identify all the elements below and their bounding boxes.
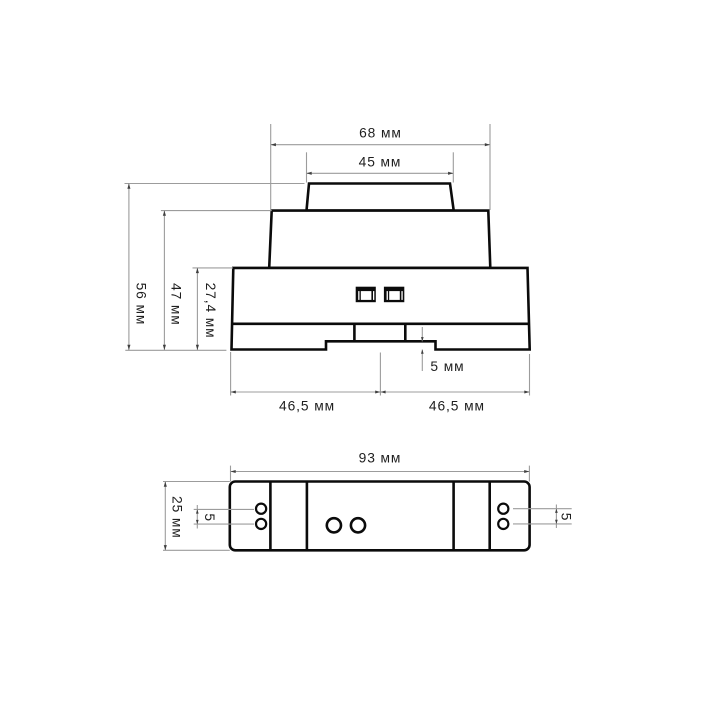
svg-text:47 мм: 47 мм: [169, 283, 184, 326]
svg-text:68 мм: 68 мм: [359, 125, 402, 140]
svg-text:46,5 мм: 46,5 мм: [279, 399, 335, 414]
svg-text:56 мм: 56 мм: [133, 283, 148, 326]
svg-text:25 мм: 25 мм: [170, 496, 185, 539]
svg-text:45 мм: 45 мм: [359, 154, 402, 169]
svg-text:27,4 мм: 27,4 мм: [203, 283, 218, 339]
svg-text:5: 5: [202, 513, 217, 522]
svg-text:5: 5: [559, 513, 574, 522]
svg-text:46,5 мм: 46,5 мм: [429, 399, 485, 414]
svg-text:93 мм: 93 мм: [359, 451, 402, 466]
svg-text:5 мм: 5 мм: [430, 359, 464, 374]
